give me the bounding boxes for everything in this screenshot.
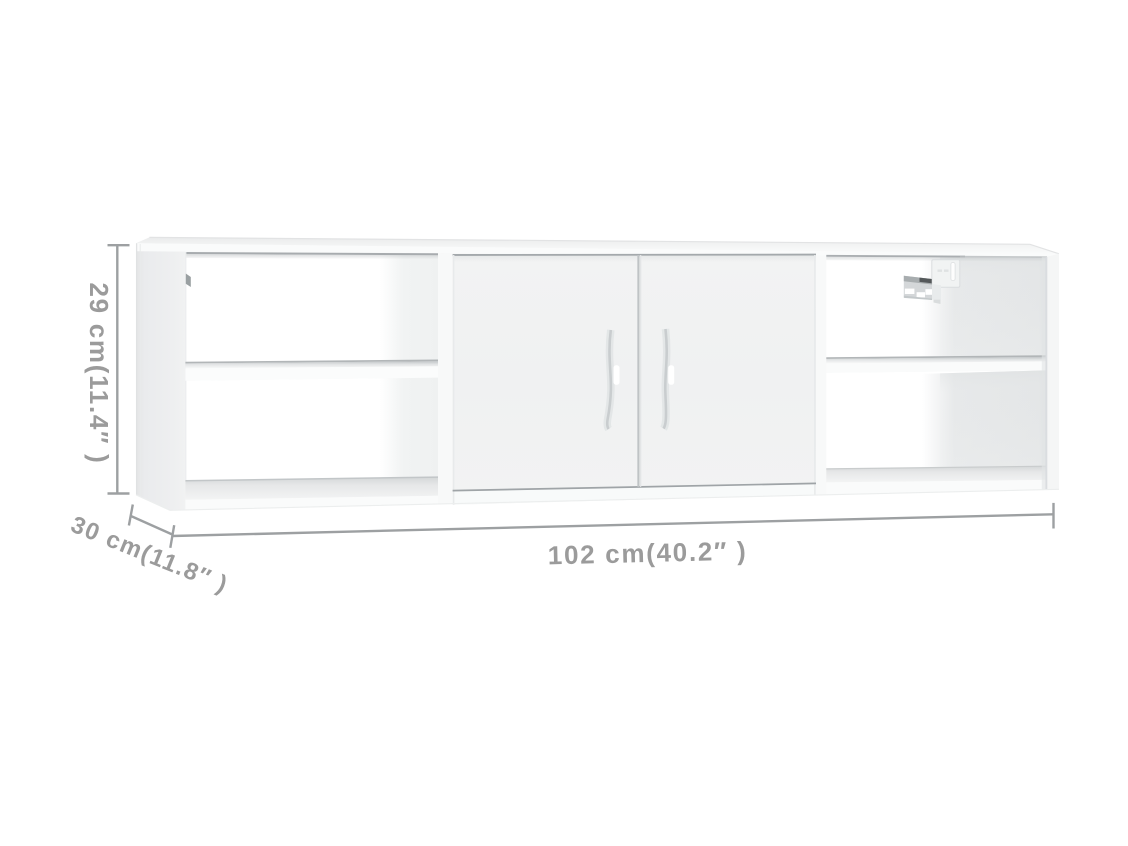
svg-text:29 cm(11.4″ ): 29 cm(11.4″ ) [84,283,114,465]
svg-text:102 cm(40.2″ ): 102 cm(40.2″ ) [547,536,747,571]
